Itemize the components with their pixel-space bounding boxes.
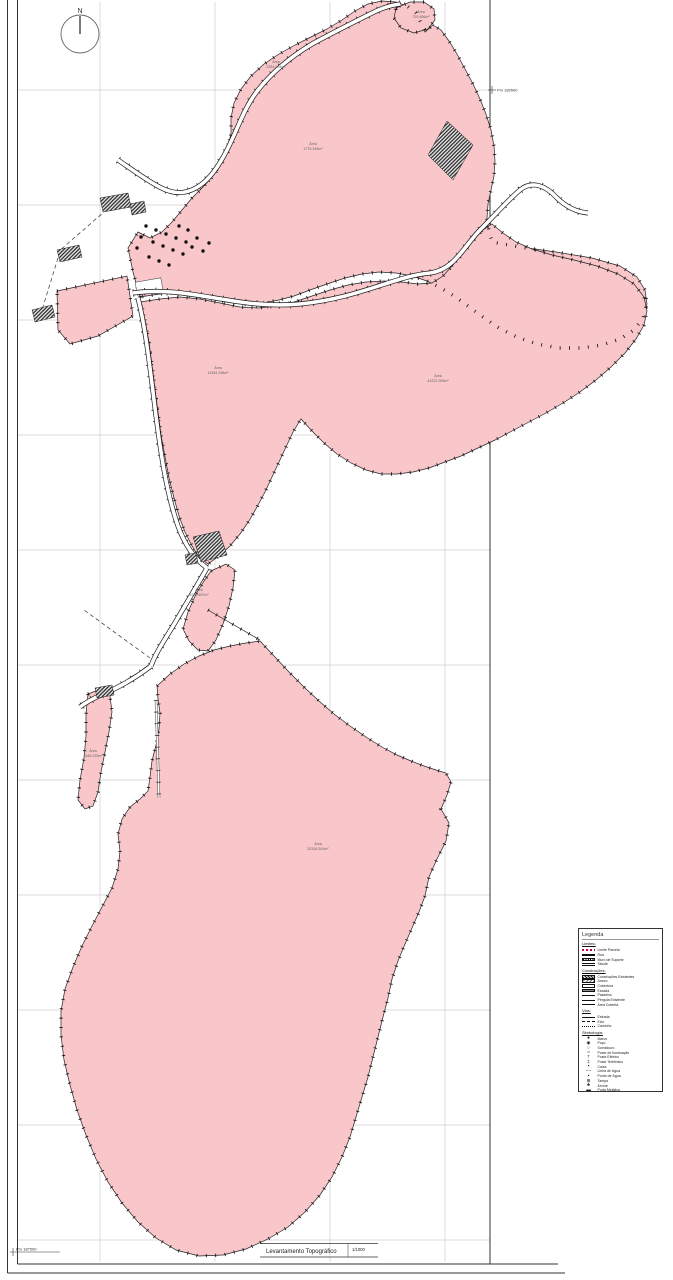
legend-item: Talude bbox=[582, 962, 659, 967]
legend-section-header: Simbologia: bbox=[582, 1031, 659, 1036]
legend-item-label: Escada bbox=[598, 989, 610, 993]
legend-item: Área Coberta bbox=[582, 1002, 659, 1007]
legend-item-label: Anexo bbox=[598, 979, 608, 983]
area-label-title: Área bbox=[214, 366, 222, 370]
legend-item-label: Poço bbox=[598, 1041, 606, 1045]
light-hatch-icon bbox=[582, 979, 595, 983]
parcel-south bbox=[61, 641, 451, 1256]
sheet-scale: 1/1000 bbox=[352, 1247, 365, 1252]
legend-item-label: Eixo bbox=[598, 1020, 605, 1024]
legend-item-label: Tampa bbox=[598, 1079, 609, 1083]
legend-section-header: Limites: bbox=[582, 942, 659, 947]
legend-box: Legenda Limites: Limite Parcela Rua Muro… bbox=[578, 928, 663, 1092]
hatched-bar-icon bbox=[582, 958, 595, 961]
legend-item: Caminho bbox=[582, 1024, 659, 1029]
dashed-line-icon bbox=[582, 1021, 595, 1022]
legend-item-label: Sumidouro bbox=[598, 1046, 615, 1050]
legend-item: ▬Porta Metálica bbox=[582, 1088, 659, 1093]
legend-item-label: Limite Parcela bbox=[598, 948, 620, 952]
building bbox=[130, 201, 146, 215]
sheet-title: Levantamento Topográfico bbox=[266, 1249, 337, 1255]
legend-item-label: Caminho bbox=[598, 1024, 612, 1028]
legend-item-label: Talude bbox=[598, 962, 608, 966]
legend-item-label: Porta Metálica bbox=[598, 1088, 620, 1092]
legend-section-construcoes: Construções: Construções Existentes Anex… bbox=[582, 969, 659, 1007]
grid-label-bottom-left: Pm 187500 bbox=[16, 1247, 37, 1252]
area-label-value: 52318.391m² bbox=[307, 847, 329, 851]
building bbox=[32, 305, 55, 322]
legend-item-label: Poste de Iluminação bbox=[598, 1051, 630, 1055]
outline-bar-icon bbox=[582, 984, 595, 988]
area-label-title: Área bbox=[314, 842, 322, 846]
building bbox=[185, 553, 198, 565]
legend-section-header: Vias: bbox=[582, 1009, 659, 1014]
legend-section-simbologia: Simbologia: ●Marco ◉Poço ○Sumidouro ☼Pos… bbox=[582, 1031, 659, 1093]
area-label-value: 11394.298m² bbox=[208, 371, 230, 375]
north-arrow: N bbox=[61, 8, 99, 53]
legend-item-label: Construções Existentes bbox=[598, 975, 635, 979]
legend-section-header: Construções: bbox=[582, 969, 659, 974]
area-label-title: Área bbox=[417, 10, 425, 14]
area-label-title: Área bbox=[272, 60, 280, 64]
legend-item-label: Poste Elétrico bbox=[598, 1055, 620, 1059]
legend-item-label: Passeios bbox=[598, 993, 612, 997]
area-label-value: 719.456m² bbox=[412, 15, 430, 19]
metal-gate-icon: ▬ bbox=[582, 1088, 595, 1093]
legend-item-label: Cobertura bbox=[598, 984, 614, 988]
title-block: Levantamento Topográfico 1/1000 bbox=[260, 1244, 378, 1258]
legend-item-label: Árvore bbox=[598, 1084, 608, 1088]
area-label-value: 1549.029m² bbox=[83, 754, 103, 758]
lined-bar-icon bbox=[582, 989, 595, 993]
building bbox=[57, 245, 82, 262]
building bbox=[95, 685, 114, 698]
double-line-icon bbox=[582, 963, 595, 965]
dark-hatch-icon bbox=[582, 975, 595, 979]
area-label-title: Área bbox=[89, 749, 97, 753]
legend-item-label: Poste Telefónico bbox=[598, 1060, 624, 1064]
legend-item-label: Rua bbox=[598, 953, 604, 957]
legend-item-label: Marco bbox=[598, 1037, 608, 1041]
area-label-title: Área bbox=[195, 588, 203, 592]
survey-sheet: N Área 719.456m² Área 2284.024m² Área 17… bbox=[0, 0, 673, 1280]
thick-black-line-icon bbox=[582, 954, 595, 956]
thin-line-icon bbox=[582, 1017, 595, 1018]
area-label-value: 3234.487m² bbox=[189, 593, 209, 597]
legend-item-label: Linha de Água bbox=[598, 1069, 621, 1073]
thin-line-icon bbox=[582, 995, 595, 996]
area-label-value: 1775.345m² bbox=[303, 147, 323, 151]
area-label-value: 2284.024m² bbox=[266, 65, 286, 69]
area-label-value: 41222.009m² bbox=[427, 379, 449, 383]
legend-item-label: Área Coberta bbox=[598, 1003, 619, 1007]
thin-line-icon bbox=[582, 1000, 595, 1001]
grid-label-top-right: Pm 189500 bbox=[497, 88, 518, 93]
legend-section-limites: Limites: Limite Parcela Rua Muro de Supo… bbox=[582, 942, 659, 966]
parcel-west-strip bbox=[57, 276, 133, 344]
legend-item-label: Ponto de Água bbox=[598, 1074, 621, 1078]
dash-red-line-icon bbox=[582, 949, 595, 951]
dotted-line-icon bbox=[582, 1026, 595, 1027]
thin-line-icon bbox=[582, 1004, 595, 1005]
area-label-title: Área bbox=[434, 374, 442, 378]
legend-item-label: Caixa bbox=[598, 1065, 607, 1069]
legend-section-vias: Vias: Estrada Eixo Caminho bbox=[582, 1009, 659, 1029]
legend-title: Legenda bbox=[582, 932, 659, 940]
survey-map-canvas: N Área 719.456m² Área 2284.024m² Área 17… bbox=[0, 0, 673, 1280]
north-label: N bbox=[77, 8, 82, 15]
legend-item-label: Muro de Suporte bbox=[598, 958, 624, 962]
legend-item-label: Pérgola Existente bbox=[598, 998, 625, 1002]
legend-item-label: Estrada bbox=[598, 1015, 610, 1019]
parcel-fills bbox=[57, 1, 647, 1256]
building bbox=[100, 193, 131, 212]
area-label-title: Área bbox=[309, 142, 317, 146]
